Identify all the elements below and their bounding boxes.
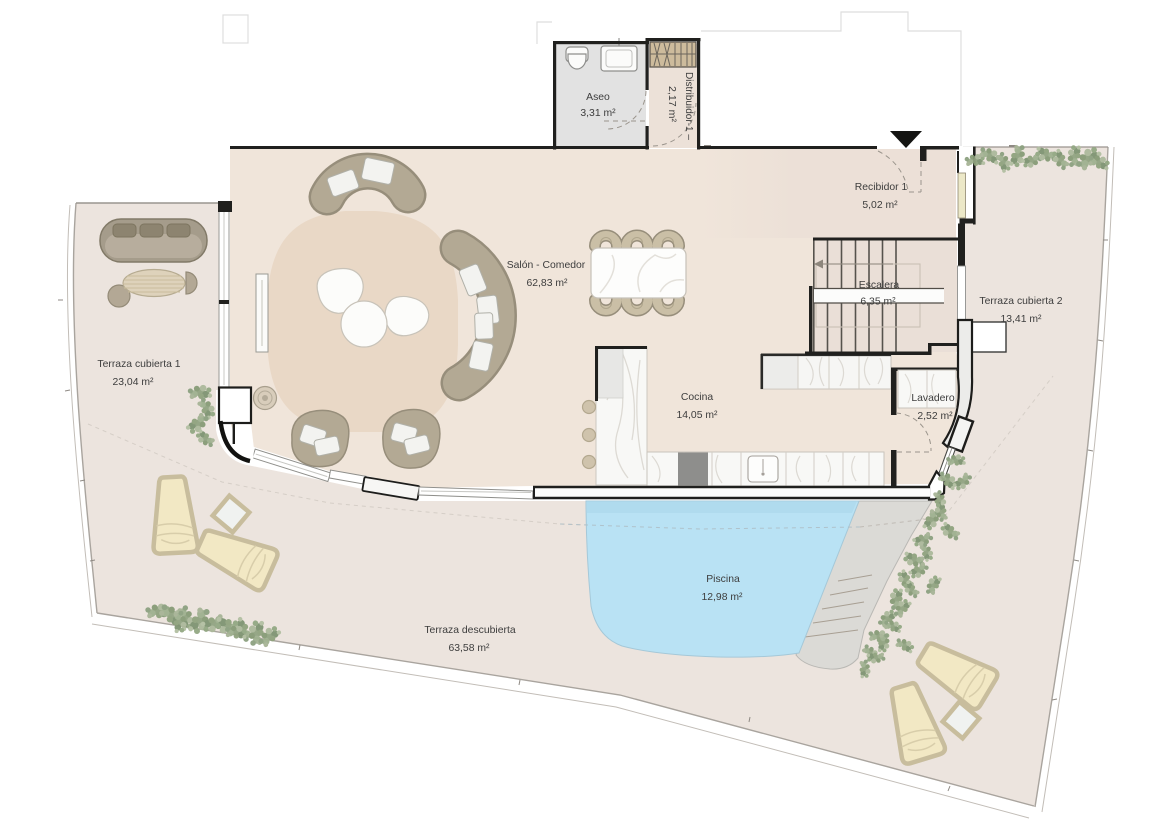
svg-text:5,02 m²: 5,02 m² bbox=[862, 200, 898, 211]
svg-text:2,17 m²: 2,17 m² bbox=[666, 86, 677, 123]
svg-text:13,41 m²: 13,41 m² bbox=[1000, 314, 1042, 325]
svg-text:Salón - Comedor: Salón - Comedor bbox=[507, 260, 586, 271]
svg-text:23,04 m²: 23,04 m² bbox=[112, 377, 154, 388]
svg-text:Distribuidor-1 –: Distribuidor-1 – bbox=[683, 72, 694, 140]
svg-text:14,05 m²: 14,05 m² bbox=[676, 410, 718, 421]
svg-text:Cocina: Cocina bbox=[681, 392, 714, 403]
svg-text:62,83 m²: 62,83 m² bbox=[526, 278, 568, 289]
svg-text:3,31 m²: 3,31 m² bbox=[580, 108, 616, 119]
svg-text:Terraza cubierta 1: Terraza cubierta 1 bbox=[97, 359, 180, 370]
svg-text:2,52 m²: 2,52 m² bbox=[917, 411, 953, 422]
svg-text:Escalera: Escalera bbox=[859, 280, 900, 291]
svg-text:Piscina: Piscina bbox=[706, 574, 740, 585]
svg-text:Terraza descubierta: Terraza descubierta bbox=[424, 625, 515, 636]
svg-text:Lavadero: Lavadero bbox=[911, 393, 955, 404]
svg-text:Recibidor 1: Recibidor 1 bbox=[855, 182, 908, 193]
svg-text:Aseo: Aseo bbox=[586, 92, 610, 103]
svg-text:63,58 m²: 63,58 m² bbox=[448, 643, 490, 654]
svg-text:Terraza cubierta 2: Terraza cubierta 2 bbox=[979, 296, 1062, 307]
svg-text:12,98 m²: 12,98 m² bbox=[701, 592, 743, 603]
svg-text:6,35 m²: 6,35 m² bbox=[860, 297, 896, 308]
